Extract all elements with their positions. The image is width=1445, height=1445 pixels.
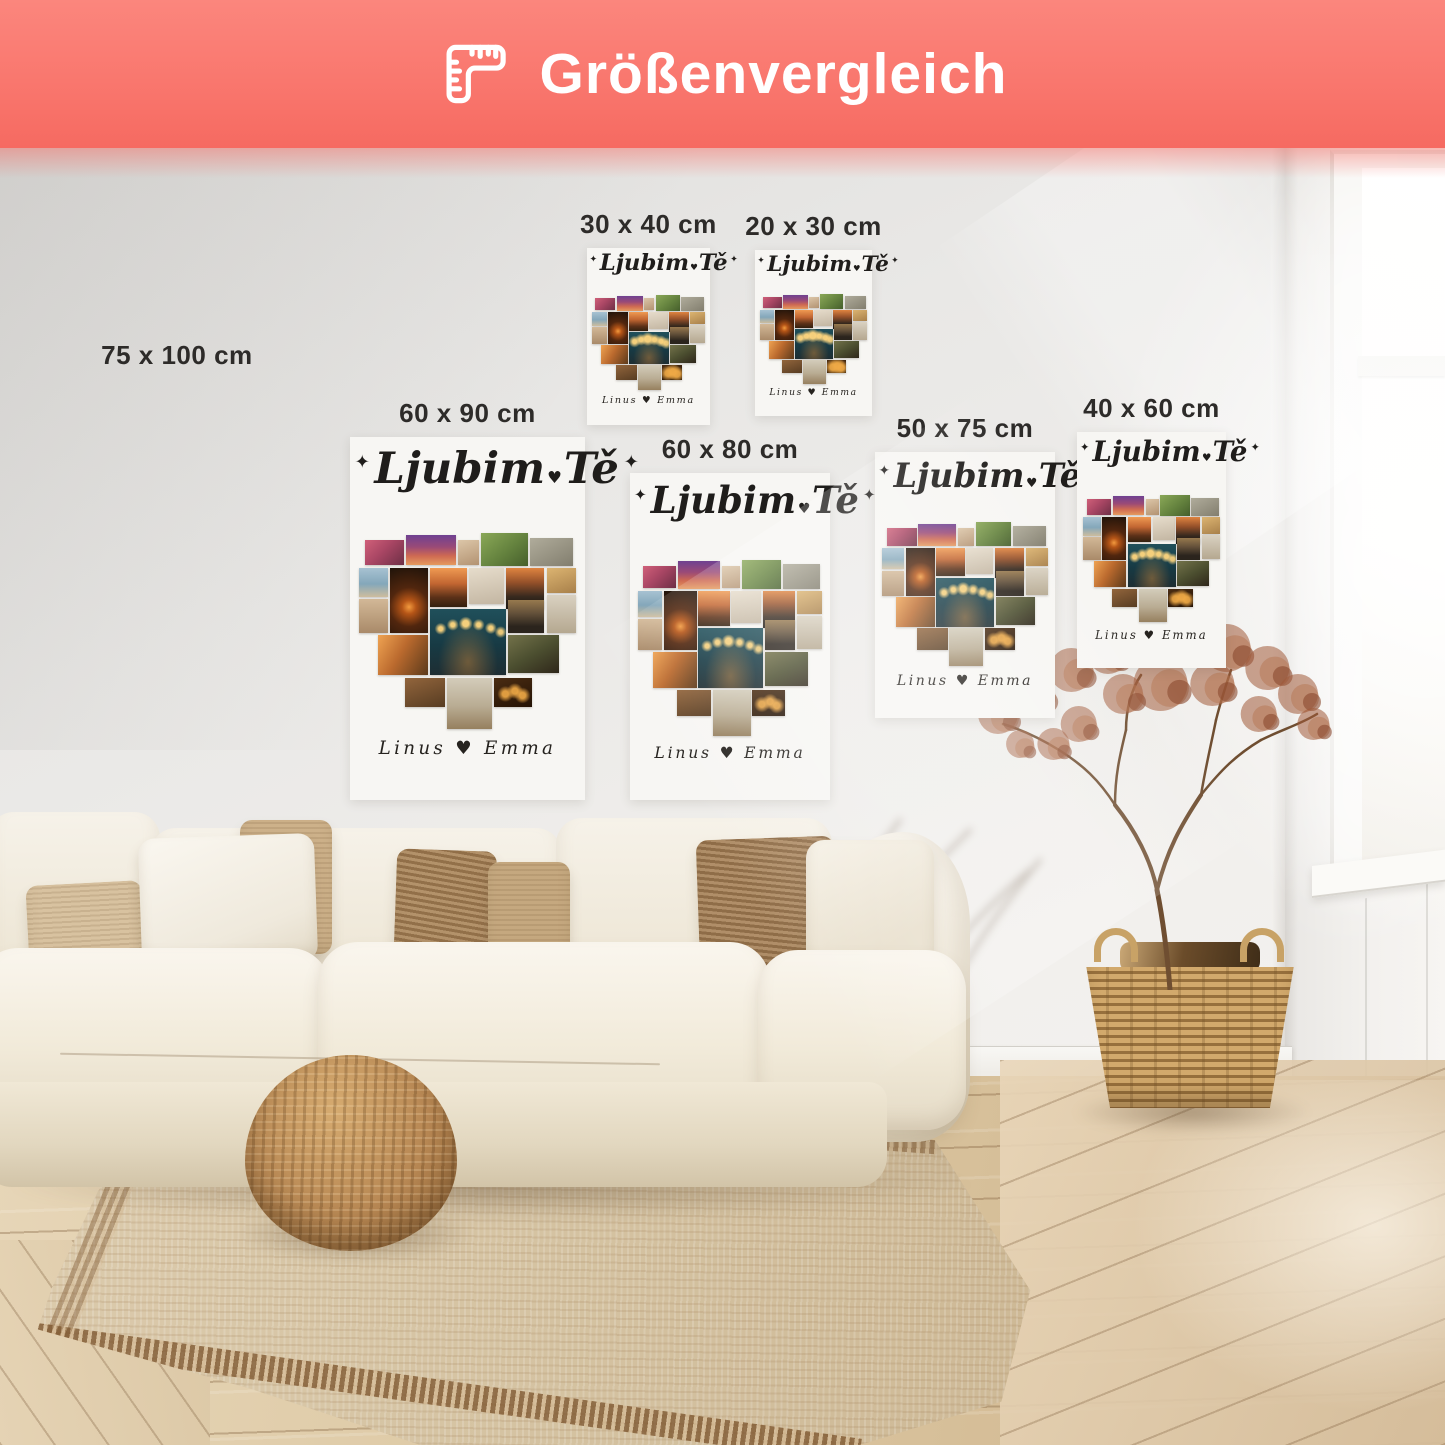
title-word: Ljubim (374, 443, 545, 494)
photo-beach-walk (638, 591, 662, 617)
photo-beach-small (644, 298, 655, 310)
poster-print-20x30: ✦Ljubim♥Tě✦Linus ♥ Emma (755, 250, 872, 416)
photo-golden-hour (378, 635, 429, 675)
photo-palms-sunset (783, 295, 808, 309)
photo-party (595, 298, 615, 310)
sparkle-icon: ✦ (623, 452, 638, 473)
heart-icon: ♥ (690, 263, 698, 273)
photo-candles (1168, 589, 1192, 608)
poster-names: Linus ♥ Emma (1077, 628, 1226, 642)
photo-sand-steps (638, 619, 662, 650)
photo-bbq (670, 345, 696, 364)
photo-golden-hour (769, 341, 794, 359)
photo-beach-walk (1083, 517, 1101, 536)
poster-print-50x75: ✦Ljubim♥Tě✦Linus ♥ Emma (875, 452, 1055, 718)
size-comparison-mockup: 75 x 100 cm30 x 40 cm✦Ljubim♥Tě✦Linus ♥ … (0, 0, 1445, 1445)
photo-night-lights (936, 578, 994, 627)
header-banner: Größenvergleich (0, 0, 1445, 148)
photo-palms-sunset (918, 524, 956, 546)
photo-candles (752, 690, 785, 716)
photo-palm-beach (795, 310, 813, 328)
photo-party (887, 528, 917, 546)
sparkle-icon: ✦ (634, 486, 647, 504)
photo-group-light (966, 548, 993, 574)
title-word: Ljubim (1092, 436, 1200, 468)
poster-title: ✦Ljubim♥Tě✦ (630, 481, 830, 520)
photo-family-beach (447, 678, 492, 729)
photo-field (1202, 517, 1220, 534)
sparkle-icon: ✦ (1250, 440, 1260, 454)
photo-sand-steps (760, 324, 774, 340)
poster-75x100: 75 x 100 cm (101, 340, 238, 376)
title-word: Ljubim (894, 456, 1025, 495)
photo-palm-beach (1128, 517, 1151, 542)
heart-collage (1083, 495, 1220, 622)
sparkle-icon: ✦ (730, 254, 738, 265)
photo-sand-steps (359, 599, 388, 633)
photo-silhouettes (834, 324, 852, 339)
title-word: Ljubim (767, 252, 852, 277)
photo-bbq (996, 597, 1035, 625)
photo-friends (681, 297, 704, 310)
photo-night-lights (698, 628, 762, 688)
photo-group-light (1153, 517, 1175, 540)
title-word: Tě (1039, 456, 1081, 495)
poster-50x75: 50 x 75 cm✦Ljubim♥Tě✦Linus ♥ Emma (875, 452, 1055, 718)
photo-silhouettes (1177, 538, 1200, 560)
poster-names: Linus ♥ Emma (630, 744, 830, 762)
photo-party (365, 540, 404, 565)
photo-dinner (917, 628, 948, 649)
photo-golden-hour (1094, 561, 1126, 587)
photo-beach-small (809, 297, 819, 308)
photo-golden-hour (601, 345, 627, 364)
photo-beach-small (458, 540, 478, 565)
photo-bbq (508, 635, 559, 673)
size-label-50x75: 50 x 75 cm (897, 413, 1034, 444)
heart-collage (638, 560, 822, 737)
photo-night-lights (629, 332, 669, 364)
heart-icon: ♥ (1026, 475, 1037, 490)
photo-night-lights (795, 329, 833, 359)
poster-title: ✦Ljubim♥Tě✦ (875, 459, 1055, 494)
photo-campfire (390, 568, 428, 633)
photo-couple-beach (1026, 568, 1048, 595)
photo-field (1026, 548, 1048, 567)
photo-golden-hour (896, 597, 935, 626)
title-word: Tě (1213, 436, 1248, 468)
size-label-30x40: 30 x 40 cm (580, 209, 717, 240)
photo-group-light (649, 312, 667, 330)
poster-20x30: 20 x 30 cm✦Ljubim♥Tě✦Linus ♥ Emma (755, 250, 872, 416)
poster-title: ✦Ljubim♥Tě✦ (1077, 438, 1226, 467)
heart-icon: ♥ (853, 263, 860, 273)
heart-icon: ♥ (798, 501, 811, 517)
photo-campfire (664, 591, 696, 650)
photo-bbq (1177, 561, 1209, 586)
title-word: Ljubim (600, 250, 689, 276)
title-word: Tě (699, 250, 728, 276)
photo-beach-walk (359, 568, 388, 597)
photo-beach-walk (760, 310, 774, 323)
photo-silhouettes (508, 600, 544, 633)
photo-party (1087, 499, 1112, 515)
photo-palm-beach (698, 591, 729, 626)
photo-picnic (742, 560, 781, 589)
photo-group-light (731, 591, 761, 623)
photo-sand-steps (1083, 537, 1101, 559)
photo-night-lights (1128, 544, 1176, 587)
poster-names: Linus ♥ Emma (587, 395, 710, 406)
heart-icon: ♥ (1202, 452, 1211, 464)
photo-family-beach (713, 690, 751, 736)
poster-names: Linus ♥ Emma (350, 738, 585, 759)
photo-silhouettes (670, 327, 689, 343)
photo-picnic (656, 295, 680, 311)
photo-palms-sunset (406, 535, 456, 566)
photo-silhouettes (996, 571, 1024, 595)
heart-collage (592, 295, 705, 391)
photo-picnic (820, 294, 843, 309)
photo-palms-sunset (678, 561, 720, 589)
title-word: Ljubim (651, 478, 796, 522)
sparkle-icon: ✦ (891, 256, 899, 266)
photo-dinner (677, 690, 711, 716)
photo-candles (985, 628, 1014, 649)
photo-field (547, 568, 576, 593)
photo-campfire (1102, 517, 1126, 560)
photo-couple-beach (690, 325, 705, 343)
poster-30x40: 30 x 40 cm✦Ljubim♥Tě✦Linus ♥ Emma (587, 248, 710, 425)
poster-print-60x90: ✦Ljubim♥Tě✦Linus ♥ Emma (350, 437, 585, 800)
photo-bbq (765, 652, 808, 686)
photo-candles (494, 678, 532, 707)
size-label-75x100: 75 x 100 cm (101, 340, 238, 371)
photo-couple-beach (797, 616, 822, 650)
photo-friends (530, 538, 573, 565)
sparkle-icon: ✦ (589, 254, 597, 265)
poster-print-40x60: ✦Ljubim♥Tě✦Linus ♥ Emma (1077, 432, 1226, 668)
photo-beach-small (1146, 499, 1159, 515)
photo-silhouettes (765, 620, 796, 650)
sparkle-icon: ✦ (878, 463, 890, 479)
poster-title: ✦Ljubim♥Tě✦ (755, 254, 872, 277)
photo-golden-hour (653, 652, 696, 688)
ruler-icon (438, 37, 512, 111)
photo-family-beach (1139, 589, 1167, 622)
photo-picnic (976, 522, 1011, 546)
photo-family-beach (949, 628, 983, 666)
poster-print-60x80: ✦Ljubim♥Tě✦Linus ♥ Emma (630, 473, 830, 800)
poster-title: ✦Ljubim♥Tě✦ (350, 446, 585, 492)
sparkle-icon: ✦ (355, 452, 370, 473)
heart-icon: ♥ (547, 467, 562, 487)
sparkle-icon: ✦ (757, 256, 765, 266)
sparkle-icon: ✦ (1080, 440, 1090, 454)
heart-collage (359, 533, 575, 729)
photo-group-light (469, 568, 504, 604)
photo-palm-beach (936, 548, 964, 577)
photo-couple-beach (853, 322, 867, 339)
poster-size-grid: 75 x 100 cm30 x 40 cm✦Ljubim♥Tě✦Linus ♥ … (0, 0, 1445, 1445)
poster-title: ✦Ljubim♥Tě✦ (587, 252, 710, 276)
size-label-20x30: 20 x 30 cm (745, 211, 882, 242)
photo-campfire (906, 548, 935, 596)
photo-friends (1191, 498, 1218, 516)
photo-friends (783, 564, 820, 589)
photo-palms-sunset (1113, 496, 1145, 516)
photo-field (690, 312, 705, 324)
photo-field (797, 591, 822, 614)
title-word: Tě (812, 478, 859, 522)
photo-campfire (608, 312, 628, 344)
photo-party (643, 566, 676, 588)
photo-palm-beach (430, 568, 467, 607)
photo-beach-small (958, 528, 974, 546)
photo-family-beach (803, 360, 825, 383)
poster-names: Linus ♥ Emma (875, 673, 1055, 689)
photo-beach-walk (592, 312, 607, 326)
poster-names: Linus ♥ Emma (755, 388, 872, 398)
photo-dinner (405, 678, 445, 707)
photo-friends (845, 296, 867, 309)
poster-60x90: 60 x 90 cm✦Ljubim♥Tě✦Linus ♥ Emma (350, 437, 585, 800)
photo-campfire (775, 310, 794, 340)
photo-group-light (814, 310, 831, 326)
photo-palms-sunset (617, 296, 643, 311)
title-word: Tě (862, 252, 889, 277)
photo-candles (662, 365, 682, 379)
photo-couple-beach (1202, 535, 1220, 559)
banner-title: Größenvergleich (540, 41, 1008, 107)
poster-60x80: 60 x 80 cm✦Ljubim♥Tě✦Linus ♥ Emma (630, 473, 830, 800)
title-word: Tě (564, 443, 619, 494)
photo-night-lights (430, 609, 506, 675)
size-label-40x60: 40 x 60 cm (1083, 393, 1220, 424)
size-label-60x90: 60 x 90 cm (399, 398, 536, 429)
photo-palm-beach (629, 312, 648, 331)
photo-party (763, 297, 782, 308)
photo-sand-steps (592, 327, 607, 344)
photo-dinner (782, 360, 802, 373)
photo-picnic (481, 533, 527, 566)
heart-collage (882, 522, 1048, 666)
photo-beach-walk (882, 548, 904, 570)
poster-print-30x40: ✦Ljubim♥Tě✦Linus ♥ Emma (587, 248, 710, 425)
photo-sand-steps (882, 571, 904, 596)
poster-40x60: 40 x 60 cm✦Ljubim♥Tě✦Linus ♥ Emma (1077, 432, 1226, 668)
photo-field (853, 310, 867, 322)
photo-bbq (834, 341, 859, 358)
photo-beach-small (722, 566, 739, 588)
photo-candles (827, 360, 846, 373)
size-label-60x80: 60 x 80 cm (662, 434, 799, 465)
photo-family-beach (638, 365, 661, 390)
sparkle-icon: ✦ (863, 486, 876, 504)
photo-dinner (616, 365, 637, 379)
photo-couple-beach (547, 595, 576, 632)
photo-dinner (1112, 589, 1137, 608)
heart-collage (760, 294, 868, 384)
photo-picnic (1160, 495, 1189, 516)
photo-friends (1013, 526, 1046, 546)
